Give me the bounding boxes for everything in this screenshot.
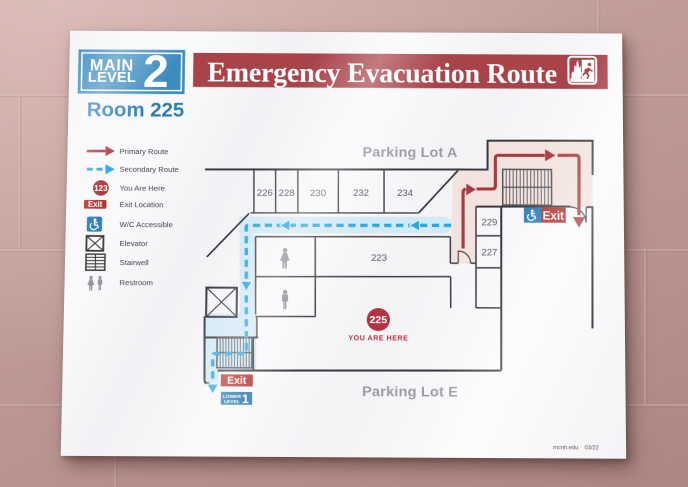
svg-text:Exit Location: Exit Location bbox=[120, 200, 164, 209]
svg-text:234: 234 bbox=[397, 188, 413, 198]
svg-text:Primary Route: Primary Route bbox=[120, 147, 169, 156]
svg-text:Exit: Exit bbox=[227, 376, 247, 387]
svg-text:You Are Here: You Are Here bbox=[120, 184, 165, 193]
svg-text:Exit: Exit bbox=[543, 210, 565, 222]
svg-text:W/C Accessible: W/C Accessible bbox=[119, 220, 173, 229]
svg-text:223: 223 bbox=[371, 253, 387, 263]
svg-text:mcnh.edu: mcnh.edu bbox=[553, 445, 578, 451]
svg-text:Parking Lot E: Parking Lot E bbox=[362, 383, 458, 400]
svg-text:2: 2 bbox=[143, 46, 170, 97]
svg-text:Secondary Route: Secondary Route bbox=[119, 165, 178, 174]
svg-text:Room 225: Room 225 bbox=[87, 99, 185, 121]
svg-text:LEVEL: LEVEL bbox=[224, 399, 240, 405]
svg-text:230: 230 bbox=[310, 188, 326, 198]
svg-text:123: 123 bbox=[94, 184, 108, 193]
svg-text:03/22: 03/22 bbox=[585, 445, 599, 451]
svg-text:Elevator: Elevator bbox=[119, 239, 148, 248]
svg-text:Exit: Exit bbox=[88, 200, 103, 209]
svg-text:227: 227 bbox=[481, 247, 497, 257]
svg-text:226: 226 bbox=[257, 188, 273, 198]
svg-text:Stairwell: Stairwell bbox=[120, 258, 150, 267]
svg-text:229: 229 bbox=[481, 217, 497, 227]
svg-text:232: 232 bbox=[353, 188, 369, 198]
svg-text:228: 228 bbox=[279, 188, 295, 198]
svg-text:LEVEL: LEVEL bbox=[88, 70, 136, 86]
svg-text:1: 1 bbox=[242, 392, 249, 406]
svg-text:225: 225 bbox=[369, 315, 387, 326]
svg-text:YOU ARE HERE: YOU ARE HERE bbox=[348, 335, 408, 342]
svg-text:Parking Lot A: Parking Lot A bbox=[363, 144, 458, 161]
svg-text:Emergency Evacuation Route: Emergency Evacuation Route bbox=[207, 56, 557, 89]
svg-text:Restroom: Restroom bbox=[119, 278, 153, 287]
